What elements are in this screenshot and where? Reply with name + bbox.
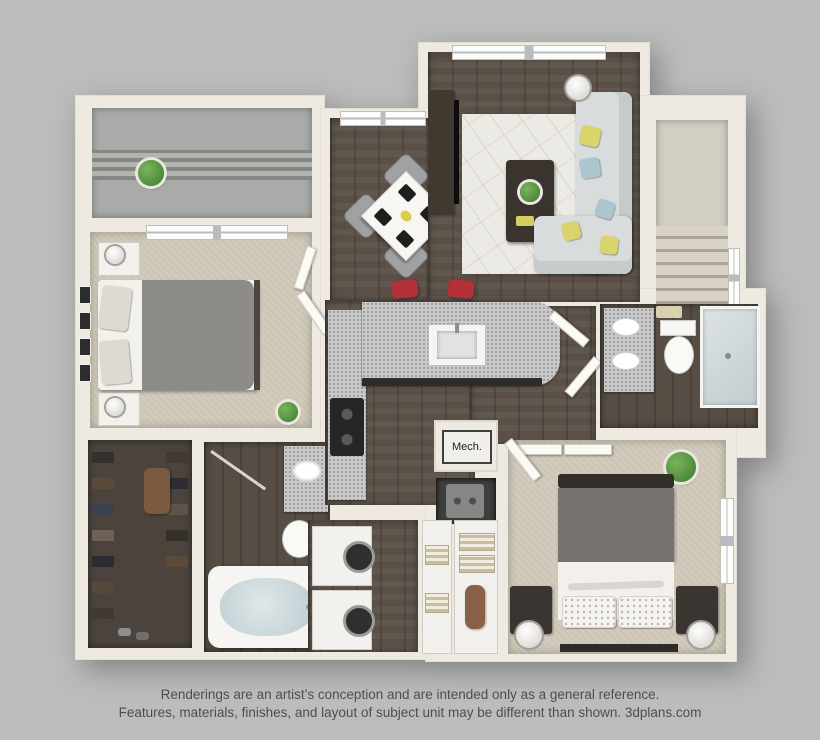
sink-faucet bbox=[455, 323, 459, 333]
walk-in-closet bbox=[88, 440, 192, 648]
towel-stack bbox=[459, 555, 495, 573]
hanging-clothes bbox=[92, 452, 114, 463]
living-room bbox=[428, 52, 640, 302]
washer-door bbox=[343, 541, 375, 573]
balcony bbox=[92, 108, 312, 218]
towel-stack bbox=[459, 533, 495, 551]
accent-pillow bbox=[618, 596, 672, 628]
bedroom-2-window bbox=[720, 498, 734, 584]
placemat bbox=[395, 229, 414, 248]
stairwell-window bbox=[728, 248, 740, 308]
shower-glass-panel bbox=[210, 450, 266, 490]
hanging-clothes bbox=[92, 504, 114, 515]
vanity-sink bbox=[612, 352, 640, 370]
picture-frame bbox=[79, 312, 91, 330]
table-lamp bbox=[106, 246, 124, 264]
placemat bbox=[398, 183, 417, 202]
sphere-lamp bbox=[688, 622, 714, 648]
bath-mat bbox=[656, 306, 682, 318]
washer bbox=[312, 526, 372, 586]
hanging-clothes bbox=[92, 530, 114, 541]
laundry-shelf bbox=[422, 520, 452, 654]
toilet-tank bbox=[660, 320, 696, 336]
bed-2-duvet bbox=[558, 488, 674, 562]
bedroom-2 bbox=[508, 440, 726, 654]
picture-frame bbox=[79, 364, 91, 382]
laundry-room bbox=[308, 520, 418, 652]
stove bbox=[330, 398, 364, 456]
mech-label: Mech. bbox=[442, 430, 492, 464]
screenshot-stage: Mech. bbox=[0, 0, 820, 740]
stairwell bbox=[656, 120, 728, 326]
hanging-clothes bbox=[92, 608, 114, 619]
vanity-sink bbox=[292, 460, 322, 482]
caption-line-1: Renderings are an artist’s conception an… bbox=[0, 686, 820, 704]
balcony-plant bbox=[138, 160, 164, 186]
hanging-clothes bbox=[92, 556, 114, 567]
shower-drain bbox=[725, 353, 731, 359]
picture-frame bbox=[79, 286, 91, 304]
hanging-clothes bbox=[166, 556, 188, 567]
towel-stack bbox=[425, 593, 449, 613]
balcony-railing bbox=[92, 150, 312, 180]
closet-sliding-door bbox=[564, 444, 612, 455]
dryer bbox=[312, 590, 372, 650]
shoes bbox=[118, 628, 131, 636]
bed-footboard bbox=[254, 280, 260, 390]
tv-console bbox=[430, 90, 454, 214]
island-cabinet-base bbox=[362, 378, 542, 386]
dining-window bbox=[340, 111, 426, 126]
linen-closet bbox=[454, 520, 498, 654]
toilet-bowl bbox=[664, 336, 694, 374]
shower bbox=[700, 306, 760, 408]
accent-pillow bbox=[562, 596, 616, 628]
sink-basin bbox=[437, 331, 477, 359]
bedroom-1-window bbox=[146, 225, 288, 240]
hanging-clothes bbox=[92, 478, 114, 489]
bathroom-1 bbox=[600, 304, 758, 428]
mech-closet: Mech. bbox=[434, 420, 498, 472]
bedroom-1 bbox=[90, 232, 312, 428]
bedroom-1-plant bbox=[278, 402, 298, 422]
island-sink bbox=[428, 324, 486, 366]
foot-rug bbox=[560, 644, 678, 652]
tv bbox=[454, 100, 459, 204]
books bbox=[516, 216, 534, 226]
living-window bbox=[452, 45, 606, 60]
sphere-lamp bbox=[516, 622, 542, 648]
water-heater bbox=[446, 484, 484, 518]
floor-plan: Mech. bbox=[0, 0, 820, 680]
throw-pillow-blue bbox=[579, 157, 602, 180]
picture-frame bbox=[79, 338, 91, 356]
headboard bbox=[558, 474, 674, 488]
throw-pillow-yellow bbox=[599, 235, 619, 255]
floor-lamp bbox=[566, 76, 590, 100]
shoes bbox=[136, 632, 149, 640]
vanity-sink bbox=[612, 318, 640, 336]
bathtub-basin bbox=[220, 578, 314, 636]
table-lamp bbox=[106, 398, 124, 416]
placemat bbox=[373, 208, 392, 227]
bar-stool bbox=[447, 279, 474, 299]
bar-stool bbox=[391, 279, 419, 300]
towel-stack bbox=[425, 545, 449, 565]
coffee-table-plant bbox=[520, 182, 540, 202]
kitchen-island bbox=[362, 302, 560, 386]
bed-pillow bbox=[98, 339, 132, 385]
hanging-clothes bbox=[92, 582, 114, 593]
utility-closet bbox=[436, 478, 496, 524]
dryer-door bbox=[343, 605, 375, 637]
caption: Renderings are an artist’s conception an… bbox=[0, 686, 820, 721]
hanging-clothes bbox=[166, 530, 188, 541]
caption-line-2: Features, materials, finishes, and layou… bbox=[0, 704, 820, 722]
closet-bench bbox=[144, 468, 170, 514]
throw-pillow-yellow bbox=[578, 124, 602, 148]
hanging-clothes bbox=[166, 452, 188, 463]
bed-1-duvet bbox=[142, 280, 254, 390]
fruit-bowl bbox=[398, 208, 414, 224]
robe bbox=[465, 585, 485, 629]
bed-pillow bbox=[97, 284, 132, 331]
